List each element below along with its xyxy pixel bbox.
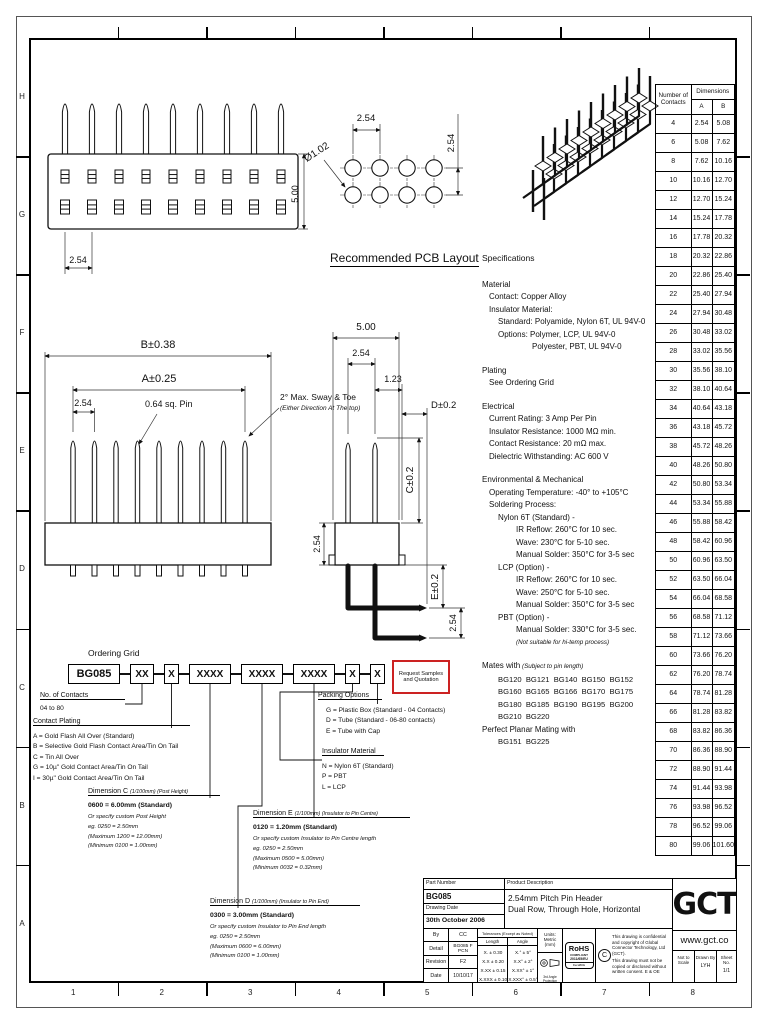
product-description-value: 2.54mm Pitch Pin Header Dual Row, Throug…	[504, 889, 673, 929]
dimension-d-header: Dimension D (1/100mm) (Insulator to Pin …	[210, 898, 360, 906]
contacts-table-row: 5466.0468.58	[656, 590, 735, 609]
list-item: C = Tin All Over	[33, 753, 178, 763]
spec-line: Dielectric Withstanding: AC 600 V	[482, 451, 660, 464]
contacts-table-cell: 53.34	[712, 476, 734, 495]
contacts-table-row: 2427.9430.48	[656, 305, 735, 324]
contacts-table-cell: 66	[656, 704, 692, 723]
frame-tick	[737, 274, 750, 276]
spec-line: Mates with (Subject to pin length)	[482, 660, 660, 674]
frame-tick	[472, 27, 474, 38]
contacts-table-cell: 58	[656, 628, 692, 647]
contacts-table-row: 87.6210.16	[656, 153, 735, 172]
contacts-table-cell: 48.26	[712, 438, 734, 457]
side-dim-254-bottom: 2.54	[448, 614, 458, 632]
contacts-table-cell: 17.78	[712, 210, 734, 229]
projection-cell: 3rd Angle Projection	[537, 952, 563, 983]
rohs-logo: RoHS COMPLIANT 2011/65/EU DecaBDE	[565, 942, 594, 969]
list-item: (Maximum 0600 = 6.00mm)	[210, 943, 326, 953]
dimension-e-header: Dimension E (1/100mm) (Insulator to Pin …	[253, 810, 410, 818]
frame-tick	[472, 983, 474, 996]
contacts-table-cell: 33.02	[691, 343, 712, 362]
list-item: X.XXX° ± 0.5°	[508, 975, 538, 983]
contacts-table-row: 3440.6443.18	[656, 400, 735, 419]
contacts-table-cell: 91.44	[712, 761, 734, 780]
rohs-line3: 2011/65/EU	[566, 957, 593, 961]
contacts-table-cell: 12.70	[712, 172, 734, 191]
dimension-c-title: Dimension C	[88, 788, 128, 795]
spec-line: Contact: Copper Alloy	[482, 291, 660, 304]
contacts-table-cell: 83.82	[691, 723, 712, 742]
rohs-line1: RoHS	[566, 944, 593, 953]
spec-line: Wave: 230°C for 5-10 sec.	[482, 537, 660, 550]
contacts-table-cell: 48.26	[691, 457, 712, 476]
rohs-cell: RoHS COMPLIANT 2011/65/EU DecaBDE	[562, 928, 596, 983]
frame-tick	[295, 27, 297, 38]
list-item: X.X ± 0.20	[478, 957, 508, 966]
side-dim-c: C±0.2	[405, 466, 416, 493]
contacts-table-cell: 96.52	[691, 818, 712, 837]
part-number-builder: BG085 XX X XXXX XXXX XXXX X X	[68, 664, 385, 684]
contacts-table-cell: 81.28	[712, 685, 734, 704]
contacts-table-cell: 86.36	[712, 723, 734, 742]
dimension-d-standard: 0300 = 3.00mm (Standard)	[210, 912, 294, 919]
contacts-table-cell: 15.24	[712, 191, 734, 210]
frame-tick	[737, 629, 750, 631]
contacts-table-cell: 43.18	[691, 419, 712, 438]
contacts-table-cell: 36	[656, 419, 692, 438]
table-header-dimensions: Dimensions	[691, 85, 735, 100]
frame-tick	[16, 747, 29, 749]
frame-tick	[16, 865, 29, 867]
spec-line: Operating Temperature: -40° to +105°C	[482, 487, 660, 500]
table-header-b: B	[712, 100, 734, 115]
contacts-table-cell: 18	[656, 248, 692, 267]
list-item: (Maximum 0500 = 5.00mm)	[253, 855, 376, 865]
frame-col-label: 5	[421, 988, 433, 997]
order-box-dim-c: XXXX	[189, 664, 231, 684]
contacts-table-cell: 2.54	[691, 115, 712, 134]
contacts-table-cell: 4	[656, 115, 692, 134]
contacts-table-cell: 20.32	[712, 229, 734, 248]
list-item: Or specify custom Insulator to Pin End l…	[210, 923, 326, 933]
spec-line: BG160 BG165 BG166 BG170 BG175	[482, 686, 660, 699]
contacts-table-cell: 96.52	[712, 799, 734, 818]
contacts-table-cell: 58.42	[712, 514, 734, 533]
contacts-table-row: 3845.7248.26	[656, 438, 735, 457]
contacts-table-cell: 88.90	[712, 742, 734, 761]
frame-tick	[118, 983, 120, 996]
title-block: Part Number BG085 Drawing Date 30th Octo…	[423, 878, 737, 983]
spec-line: Polyester, PBT, UL 94V-0	[482, 341, 660, 354]
frame-col-label: 7	[598, 988, 610, 997]
contacts-table-cell: 53.34	[691, 495, 712, 514]
projection-label: 3rd Angle Projection	[538, 975, 562, 983]
list-item: X.X° ± 2°	[508, 957, 538, 966]
list-item: eg. 0250 = 2.50mm	[88, 823, 166, 833]
contacts-table-cell: 78.74	[712, 666, 734, 685]
dimension-c-note: (1/100mm) (Post Height)	[130, 789, 188, 795]
order-box-dim-d: XXXX	[241, 664, 283, 684]
pcb-dim-pitch-h: 2.54	[357, 113, 376, 124]
contacts-table-cell: 20	[656, 267, 692, 286]
contacts-table-cell: 20.32	[691, 248, 712, 267]
contacts-table-cell: 40	[656, 457, 692, 476]
copyright-text-1: This drawing is confidential and copyrig…	[612, 934, 672, 956]
frame-col-label: 2	[156, 988, 168, 997]
contacts-table-cell: 86.36	[691, 742, 712, 761]
contacts-table-cell: 60	[656, 647, 692, 666]
contacts-table-cell: 42	[656, 476, 692, 495]
drawn-by-cell: Drawn By LYH	[694, 950, 717, 983]
date-value: 10/10/17	[448, 968, 478, 983]
contacts-table-row: 4453.3455.88	[656, 495, 735, 514]
contacts-table-cell: 40.64	[712, 381, 734, 400]
spec-line: Environmental & Mechanical	[482, 474, 660, 487]
contacts-table-row: 2225.4027.94	[656, 286, 735, 305]
frame-col-label: 3	[244, 988, 256, 997]
contacts-table-cell: 25.40	[712, 267, 734, 286]
pcb-layout-title: Recommended PCB Layout	[330, 251, 479, 267]
contacts-table-cell: 38	[656, 438, 692, 457]
contacts-table-cell: 40.64	[691, 400, 712, 419]
detail-value: BG085 F PCN	[448, 941, 478, 956]
order-box-packing: X	[370, 664, 385, 684]
scale-line2: Scale	[673, 960, 694, 965]
copyright-cell: C This drawing is confidential and copyr…	[595, 928, 673, 983]
website-link[interactable]: www.gct.co	[672, 930, 737, 951]
drawn-by-value: LYH	[695, 963, 716, 969]
dash	[335, 673, 345, 674]
contacts-table-cell: 63.50	[712, 552, 734, 571]
contacts-table-cell: 81.28	[691, 704, 712, 723]
pcb-dim-pitch-v: 2.54	[446, 134, 457, 153]
contacts-table-cell: 5.08	[712, 115, 734, 134]
dimension-c-notes: Or specify custom Post Heighteg. 0250 = …	[88, 813, 166, 852]
front-view-drawing: 5.00 2.54	[40, 82, 310, 282]
frame-tick	[649, 27, 651, 38]
spec-line: LCP (Option) -	[482, 562, 660, 575]
contacts-table-cell: 99.06	[712, 818, 734, 837]
sheet-no-value: 1/1	[717, 968, 736, 974]
spec-gap	[482, 649, 660, 660]
contacts-table-cell: 25.40	[691, 286, 712, 305]
list-item: X. ± 0.30	[478, 948, 508, 957]
spec-line: BG210 BG220	[482, 711, 660, 724]
dimension-e-standard: 0120 = 1.20mm (Standard)	[253, 824, 337, 831]
frame-row-label: B	[16, 801, 28, 810]
contacts-table-cell: 72	[656, 761, 692, 780]
frame-row-label: F	[16, 328, 28, 337]
request-samples-line2: and Quotation	[403, 677, 438, 684]
units-value: Metric (mm)	[538, 937, 562, 947]
contacts-table-cell: 64	[656, 685, 692, 704]
list-item: Or specify custom Post Height	[88, 813, 166, 823]
side-dim-e: E±0.2	[430, 574, 441, 600]
contacts-table-cell: 45.72	[691, 438, 712, 457]
contacts-table-cell: 30	[656, 362, 692, 381]
spec-line: Options: Polymer, LCP, UL 94V-0	[482, 329, 660, 342]
contacts-table-cell: 7.62	[691, 153, 712, 172]
list-item: G = Plastic Box (Standard - 04 Contacts)	[326, 706, 445, 716]
contacts-table-row: 8099.06101.60	[656, 837, 735, 856]
frame-col-label: 6	[510, 988, 522, 997]
contacts-table-row: 7693.9896.52	[656, 799, 735, 818]
scale-cell: Not to Scale	[672, 950, 695, 983]
contacts-table-cell: 68	[656, 723, 692, 742]
frame-tick	[737, 156, 750, 158]
contacts-table-cell: 10	[656, 172, 692, 191]
by-value: CC	[448, 928, 478, 942]
frame-tick	[16, 629, 29, 631]
side-dim-a: A±0.25	[142, 373, 177, 385]
detail-label: Detail	[423, 941, 449, 956]
drawing-date-value: 30th October 2006	[423, 914, 505, 929]
request-samples-button[interactable]: Request Samples and Quotation	[392, 660, 450, 694]
contacts-table-cell: 48	[656, 533, 692, 552]
contacts-table-cell: 32	[656, 381, 692, 400]
specifications-section: Specifications MaterialContact: Copper A…	[482, 252, 660, 749]
tolerance-angle-values: X.° ± 5°X.X° ± 2°X.XX° ± 1°X.XXX° ± 0.5°	[507, 945, 538, 983]
contact-plating-header: Contact Plating	[33, 718, 190, 726]
product-description-line1: 2.54mm Pitch Pin Header	[508, 893, 672, 904]
list-item: X.XX ± 0.15	[478, 966, 508, 975]
revision-value: F2	[448, 955, 478, 969]
packing-options-items: G = Plastic Box (Standard - 04 Contacts)…	[326, 706, 445, 737]
insulator-material-header: Insulator Material	[322, 748, 384, 756]
order-box-contacts: XX	[130, 664, 154, 684]
contacts-table-row: 4858.4260.96	[656, 533, 735, 552]
frame-tick	[383, 983, 385, 996]
contacts-table-cell: 35.56	[712, 343, 734, 362]
contacts-table-row: 65.087.62	[656, 134, 735, 153]
gct-logo-text: GCT	[672, 887, 736, 922]
contacts-table-cell: 60.96	[691, 552, 712, 571]
contacts-table-cell: 38.10	[712, 362, 734, 381]
contacts-table-cell: 16	[656, 229, 692, 248]
contacts-table-cell: 24	[656, 305, 692, 324]
contacts-table-cell: 71.12	[712, 609, 734, 628]
spec-line: Nylon 6T (Standard) -	[482, 512, 660, 525]
side-dim-123: 1.23	[384, 374, 402, 384]
contacts-table-cell: 71.12	[691, 628, 712, 647]
frame-row-label: E	[16, 446, 28, 455]
contacts-table-cell: 22	[656, 286, 692, 305]
spec-line: IR Reflow: 260°C for 10 sec.	[482, 524, 660, 537]
list-item: (Minimum 0100 = 1.00mm)	[210, 952, 326, 962]
contacts-table-cell: 10.16	[712, 153, 734, 172]
dimension-d-title: Dimension D	[210, 898, 250, 905]
frame-col-label: 1	[67, 988, 79, 997]
list-item: X.° ± 5°	[508, 948, 538, 957]
list-item: (Maximum 1200 = 12.00mm)	[88, 833, 166, 843]
contacts-table-cell: 44	[656, 495, 692, 514]
front-view-dim-pitch: 2.54	[69, 255, 87, 265]
spec-line: Wave: 250°C for 5-10 sec.	[482, 587, 660, 600]
contacts-table-cell: 34	[656, 400, 692, 419]
dimension-e-title: Dimension E	[253, 810, 293, 817]
side-dim-b: B±0.38	[141, 339, 176, 351]
contacts-table-cell: 50	[656, 552, 692, 571]
dash	[231, 673, 241, 674]
contacts-table-cell: 66.04	[691, 590, 712, 609]
contacts-table-row: 5060.9663.50	[656, 552, 735, 571]
spec-line: Electrical	[482, 401, 660, 414]
contacts-table-cell: 80	[656, 837, 692, 856]
spec-line: Material	[482, 279, 660, 292]
contacts-count-range: 04 to 80	[40, 705, 64, 712]
frame-tick	[206, 27, 208, 38]
spec-line: Plating	[482, 365, 660, 378]
contacts-table-row: 6276.2078.74	[656, 666, 735, 685]
sheet-no-cell: Sheet No. 1/1	[716, 950, 737, 983]
contacts-table-cell: 62	[656, 666, 692, 685]
spec-line-note: (Subject to pin length)	[520, 663, 583, 670]
contacts-table-cell: 27.94	[691, 305, 712, 324]
contacts-table-cell: 60.96	[712, 533, 734, 552]
order-box-plating: X	[164, 664, 179, 684]
contacts-table-cell: 30.48	[712, 305, 734, 324]
contacts-table-row: 7288.9091.44	[656, 761, 735, 780]
units-cell: Units: Metric (mm)	[537, 928, 563, 953]
spec-line: BG180 BG185 BG190 BG195 BG200	[482, 699, 660, 712]
revision-label: Revision	[423, 955, 449, 969]
frame-row-label: C	[16, 683, 28, 692]
contacts-table-row: 5263.5066.04	[656, 571, 735, 590]
gct-logo: GCT	[672, 878, 737, 931]
contacts-table-row: 5668.5871.12	[656, 609, 735, 628]
dash	[283, 673, 293, 674]
contacts-table-cell: 26	[656, 324, 692, 343]
contacts-table-cell: 30.48	[691, 324, 712, 343]
side-view-drawing: B±0.38 A±0.25 2.54 0.64 sq. Pin 2° Max. …	[33, 308, 483, 660]
contacts-table-row: 7896.5299.06	[656, 818, 735, 837]
contacts-table-cell: 5.08	[691, 134, 712, 153]
contacts-table-row: 6883.8286.36	[656, 723, 735, 742]
contacts-table-cell: 76	[656, 799, 692, 818]
contacts-table-cell: 10.16	[691, 172, 712, 191]
contacts-table-cell: 58.42	[691, 533, 712, 552]
side-dim-pitch: 2.54	[74, 398, 92, 408]
list-item: P = PBT	[322, 772, 394, 782]
frame-row-label: H	[16, 92, 28, 101]
contacts-table-row: 1617.7820.32	[656, 229, 735, 248]
contacts-table-cell: 68.58	[712, 590, 734, 609]
contacts-table-cell: 22.86	[712, 248, 734, 267]
third-angle-projection-icon	[539, 956, 561, 970]
copyright-text-2: This drawing must not be copied or discl…	[612, 958, 672, 975]
frame-tick	[560, 983, 562, 996]
side-sway-note-1: 2° Max. Sway & Toe	[280, 392, 356, 402]
list-item: L = LCP	[322, 783, 394, 793]
contacts-table-cell: 83.82	[712, 704, 734, 723]
spec-line: Contact Resistance: 20 mΩ max.	[482, 438, 660, 451]
contacts-table-cell: 78.74	[691, 685, 712, 704]
contacts-table-row: 3238.1040.64	[656, 381, 735, 400]
spec-line: Current Rating: 3 Amp Per Pin	[482, 413, 660, 426]
contacts-table-row: 6478.7481.28	[656, 685, 735, 704]
contacts-table-cell: 6	[656, 134, 692, 153]
contacts-table-row: 7086.3688.90	[656, 742, 735, 761]
dash	[360, 673, 370, 674]
spec-gap	[482, 390, 660, 401]
contacts-table-row: 6681.2883.82	[656, 704, 735, 723]
side-dim-254-left: 2.54	[312, 535, 322, 553]
side-pin-size-label: 0.64 sq. Pin	[145, 399, 193, 409]
contacts-table-row: 1415.2417.78	[656, 210, 735, 229]
dimension-e-notes: Or specify custom Insulator to Pin Centr…	[253, 835, 376, 874]
contacts-table-row: 1212.7015.24	[656, 191, 735, 210]
list-item: B = Selective Gold Flash Contact Area/Ti…	[33, 742, 178, 752]
list-item: D = Tube (Standard - 06-80 contacts)	[326, 716, 445, 726]
frame-col-label: 4	[333, 988, 345, 997]
list-item: (Minimum 0032 = 0.32mm)	[253, 864, 376, 874]
contacts-table-row: 1820.3222.86	[656, 248, 735, 267]
list-item: N = Nylon 6T (Standard)	[322, 762, 394, 772]
side-dim-d: D±0.2	[431, 400, 456, 411]
contacts-table-row: 6073.6676.20	[656, 647, 735, 666]
contacts-table-cell: 7.62	[712, 134, 734, 153]
order-box-series: BG085	[68, 664, 120, 684]
contacts-table-row: 42.545.08	[656, 115, 735, 134]
frame-tick	[295, 983, 297, 996]
date-label: Date	[423, 968, 449, 983]
frame-tick	[737, 747, 750, 749]
contacts-table-cell: 12.70	[691, 191, 712, 210]
spec-line: BG120 BG121 BG140 BG150 BG152	[482, 674, 660, 687]
contacts-table-cell: 14	[656, 210, 692, 229]
spec-line: BG151 BG225	[482, 736, 660, 749]
spec-line: IR Reflow: 260°C for 10 sec.	[482, 574, 660, 587]
contacts-table-cell: 52	[656, 571, 692, 590]
pcb-layout-drawing: 2.54 2.54 Ø1.02	[298, 98, 483, 248]
list-item: X.XX° ± 1°	[508, 966, 538, 975]
part-number-value: BG085	[423, 889, 505, 904]
frame-tick	[383, 27, 385, 38]
dimension-e-note: (1/100mm) (Insulator to Pin Centre)	[295, 811, 378, 817]
frame-col-label: 8	[687, 988, 699, 997]
dimension-c-standard: 0600 = 6.00mm (Standard)	[88, 802, 172, 809]
list-item: eg. 0250 = 2.50mm	[253, 845, 376, 855]
pcb-dim-hole-dia: Ø1.02	[302, 140, 331, 164]
list-item: I = 30µ" Gold Contact Area/Tin On Tail	[33, 774, 178, 784]
spec-line: Soldering Process:	[482, 499, 660, 512]
spec-line: Manual Solder: 330°C for 3-5 sec.	[482, 624, 660, 637]
side-dim-254-top: 2.54	[352, 348, 370, 358]
contacts-table-cell: 8	[656, 153, 692, 172]
contacts-table-cell: 50.80	[691, 476, 712, 495]
spec-line: Insulator Material:	[482, 304, 660, 317]
order-box-insulator: X	[345, 664, 360, 684]
contacts-table-cell: 93.98	[691, 799, 712, 818]
contact-plating-items: A = Gold Flash All Over (Standard)B = Se…	[33, 732, 178, 784]
contacts-table-cell: 56	[656, 609, 692, 628]
spec-line: See Ordering Grid	[482, 377, 660, 390]
contacts-table-cell: 73.66	[691, 647, 712, 666]
copyright-icon: C	[598, 949, 611, 962]
frame-tick	[737, 392, 750, 394]
contacts-table-body: 42.545.0865.087.6287.6210.161010.1612.70…	[656, 115, 735, 856]
contacts-table-row: 1010.1612.70	[656, 172, 735, 191]
product-description-line2: Dual Row, Through Hole, Horizontal	[508, 904, 672, 915]
dash	[179, 673, 189, 674]
dimension-d-note: (1/100mm) (Insulator to Pin End)	[252, 899, 329, 905]
dimension-c-header: Dimension C (1/100mm) (Post Height)	[88, 788, 220, 796]
spec-gap	[482, 463, 660, 474]
rohs-line4: DecaBDE	[566, 962, 593, 967]
contacts-table-cell: 12	[656, 191, 692, 210]
by-label: By	[423, 928, 449, 942]
contacts-table-row: 2022.8625.40	[656, 267, 735, 286]
